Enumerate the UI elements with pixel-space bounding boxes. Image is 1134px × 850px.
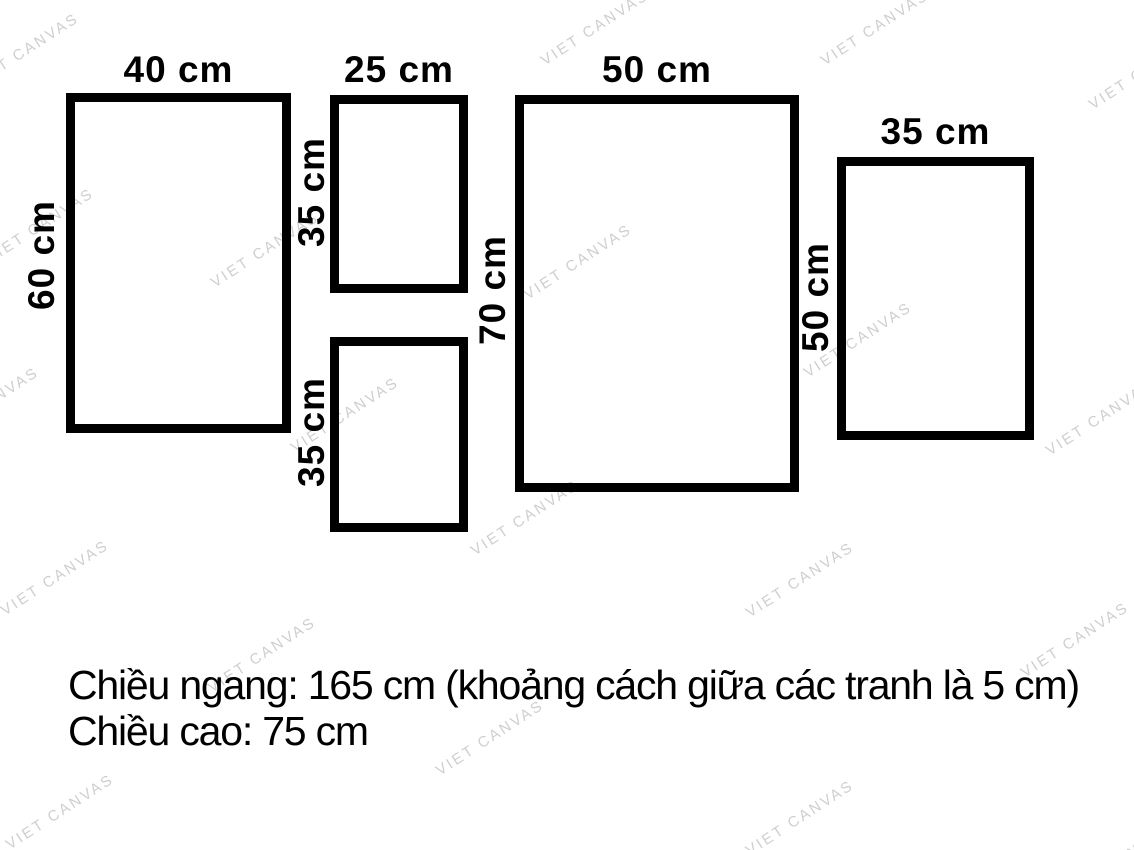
frame-25x35-bottom-height-label: 35 cm	[292, 367, 332, 497]
frame-50x70-width-label: 50 cm	[515, 50, 799, 90]
frame-50x70-height-label: 70 cm	[473, 225, 513, 355]
viet-canvas-watermark: VIET CANVAS	[1086, 31, 1134, 114]
frame-40x60	[66, 93, 291, 433]
viet-canvas-watermark: VIET CANVAS	[0, 364, 42, 447]
viet-canvas-watermark: VIET CANVAS	[0, 537, 112, 620]
frame-35x50	[837, 157, 1034, 440]
viet-canvas-watermark: VIET CANVAS	[1043, 377, 1134, 460]
frame-40x60-height-label: 60 cm	[22, 190, 62, 320]
frame-25x35-top-height-label: 35 cm	[292, 127, 332, 257]
viet-canvas-watermark: VIET CANVAS	[818, 0, 932, 69]
frame-25x35-bottom	[330, 337, 468, 532]
frame-35x50-height-label: 50 cm	[796, 232, 836, 362]
viet-canvas-watermark: VIET CANVAS	[743, 539, 857, 622]
frame-35x50-width-label: 35 cm	[837, 112, 1034, 152]
frame-25x35-top-width-label: 25 cm	[330, 50, 468, 90]
overall-height-note: Chiều cao: 75 cm	[68, 708, 1079, 754]
frame-25x35-top	[330, 95, 468, 293]
overall-dimensions-note: Chiều ngang: 165 cm (khoảng cách giữa cá…	[68, 662, 1079, 754]
frame-layout-diagram: VIET CANVASVIET CANVASVIET CANVASVIET CA…	[0, 0, 1134, 850]
viet-canvas-watermark: VIET CANVAS	[743, 777, 857, 850]
frame-40x60-width-label: 40 cm	[66, 50, 291, 90]
viet-canvas-watermark: VIET CANVAS	[1061, 821, 1134, 850]
overall-width-note: Chiều ngang: 165 cm (khoảng cách giữa cá…	[68, 662, 1079, 708]
viet-canvas-watermark: VIET CANVAS	[3, 771, 117, 850]
frame-50x70	[515, 95, 799, 492]
